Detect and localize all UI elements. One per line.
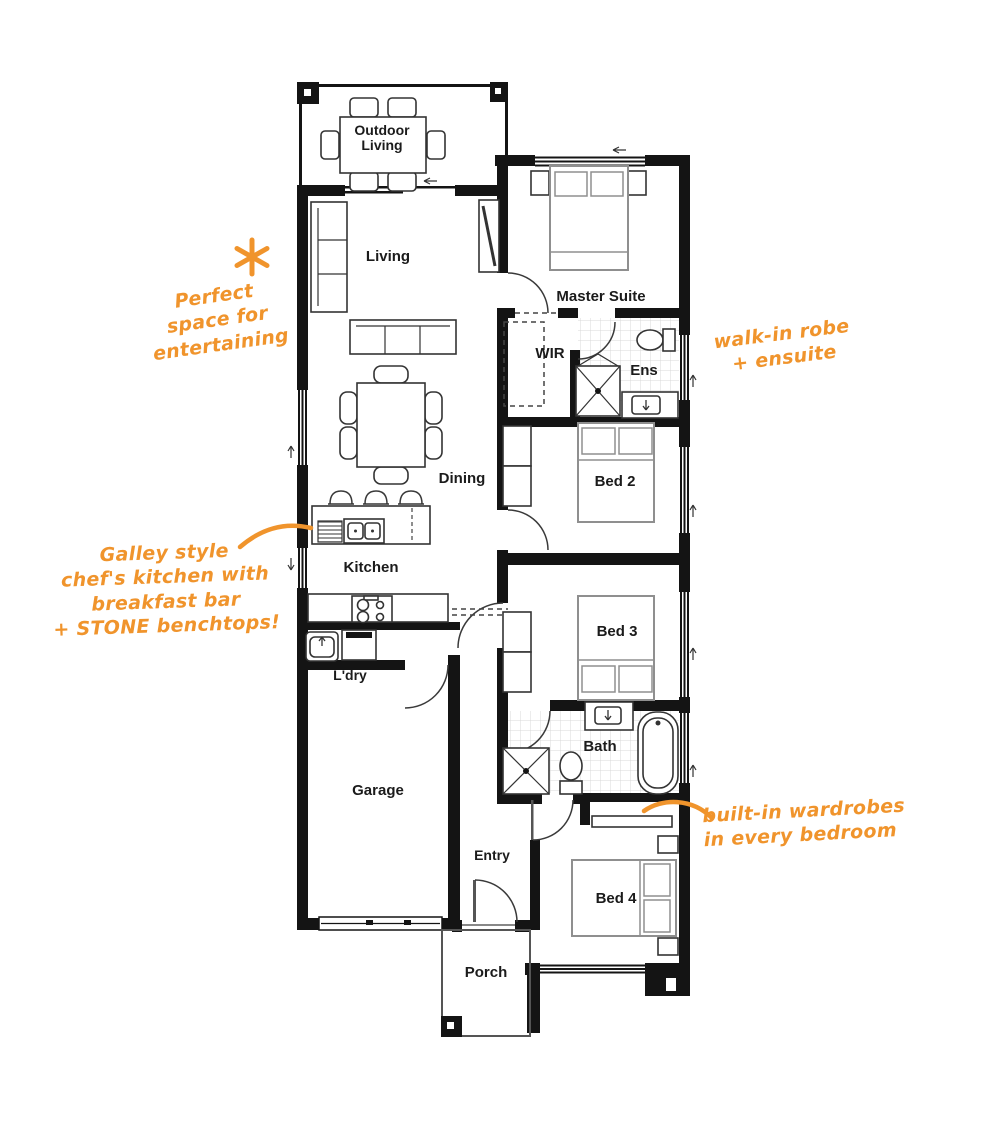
dining-table: [357, 383, 425, 467]
bed4-door: [531, 800, 573, 840]
bathtub: [638, 712, 678, 794]
room-label-living: Living: [366, 248, 410, 265]
laundry-tub: [306, 632, 338, 661]
room-label-master-suite: Master Suite: [556, 288, 645, 305]
bed2-door-arc: [508, 510, 548, 550]
bed3-furniture: [503, 596, 654, 700]
vanity: [622, 392, 678, 418]
up-arrow-icon: [690, 765, 696, 777]
room-label-bath: Bath: [583, 738, 616, 755]
room-label-outdoor-living: Living: [361, 137, 402, 153]
window-bed4: [540, 965, 645, 974]
vanity: [585, 702, 633, 730]
dining-furniture: [340, 366, 442, 484]
wir-shelves: [504, 322, 544, 406]
master-furniture: [531, 166, 646, 270]
kitchen-furniture: [308, 491, 448, 623]
toilet: [637, 329, 675, 351]
room-label-porch: Porch: [465, 964, 508, 981]
room-label-wir: WIR: [535, 345, 564, 362]
room-label-kitchen: Kitchen: [343, 559, 398, 576]
room-label-garage: Garage: [352, 782, 404, 799]
master-door-arc: [508, 273, 548, 313]
shower: [503, 748, 549, 794]
slide-arrow-icon: [613, 147, 626, 153]
garage-panel-door: [319, 917, 442, 930]
floor-plan-canvas: Outdoor Living Living Master Suite WIR E…: [0, 0, 1000, 1134]
washing-machine: [342, 630, 376, 660]
room-label-bed3: Bed 3: [597, 623, 638, 640]
room-label-outdoor-living: Outdoor: [354, 122, 410, 138]
robe: [503, 652, 531, 692]
window-dining: [298, 390, 307, 465]
room-label-entry: Entry: [474, 847, 510, 863]
annotation-kitchen: Galley style chef's kitchen with breakfa…: [36, 537, 294, 643]
slide-arrow-icon: [424, 178, 437, 184]
dishwasher: [318, 521, 342, 542]
up-arrow-icon: [288, 446, 294, 458]
room-label-dining: Dining: [439, 470, 486, 487]
tv-unit: [479, 200, 499, 272]
room-label-ldry: L'dry: [333, 667, 367, 683]
room-label-ens: Ens: [630, 362, 658, 379]
window-bath: [680, 713, 689, 783]
bed4-furniture: [572, 816, 678, 955]
up-arrow-icon: [690, 505, 696, 517]
window-bed3: [680, 592, 689, 697]
robe: [592, 816, 672, 827]
window-kitchen: [298, 548, 307, 588]
sofa: [350, 320, 456, 354]
robe: [503, 612, 531, 652]
cooktop-bench: [308, 594, 448, 623]
bedside-table: [531, 171, 549, 195]
bedside-table: [658, 836, 678, 853]
bar-stools: [328, 491, 424, 504]
garage-door-arc: [405, 665, 448, 708]
front-door: [462, 880, 517, 926]
room-label-bed4: Bed 4: [596, 890, 638, 907]
window-bed2: [680, 447, 689, 533]
island-bench: [312, 506, 430, 544]
sofa: [311, 202, 347, 312]
up-arrow-icon: [690, 648, 696, 660]
robe: [503, 426, 531, 466]
bedside-table: [628, 171, 646, 195]
asterisk-icon: [237, 240, 267, 274]
robe: [503, 466, 531, 506]
toilet: [560, 752, 582, 794]
living-furniture: [311, 200, 499, 354]
porch-structure: [441, 930, 530, 1037]
bedside-table: [658, 938, 678, 955]
room-label-bed2: Bed 2: [595, 473, 636, 490]
window-ens: [680, 335, 689, 400]
laundry-fixtures: [306, 630, 376, 661]
